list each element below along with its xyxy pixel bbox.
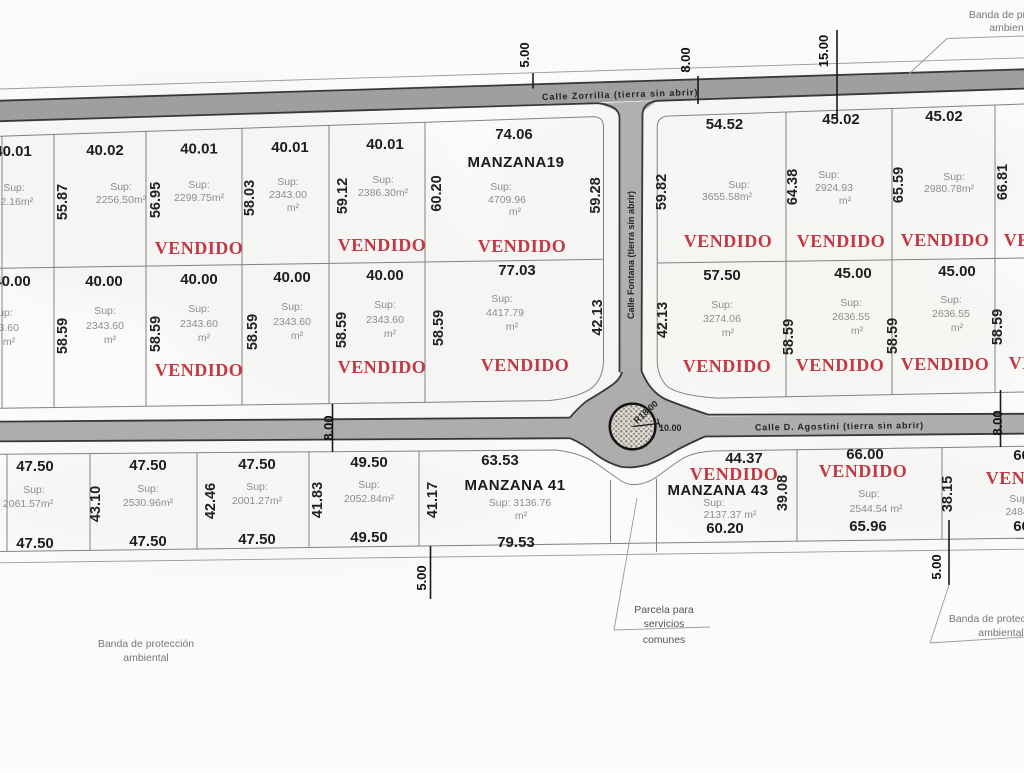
svg-text:Sup:: Sup: [490, 181, 512, 193]
svg-text:41.83: 41.83 [310, 482, 326, 518]
svg-text:VENDIDO: VENDIDO [481, 355, 570, 375]
svg-text:63.53: 63.53 [481, 452, 519, 469]
svg-text:42.13: 42.13 [655, 302, 671, 338]
svg-text:MANZANA19: MANZANA19 [467, 154, 564, 171]
svg-text:VENDIDO: VENDIDO [155, 360, 244, 380]
svg-text:47.50: 47.50 [238, 531, 276, 548]
svg-text:Sup:: Sup: [3, 182, 25, 194]
svg-text:45.02: 45.02 [822, 111, 860, 128]
svg-text:Sup:: Sup: [281, 301, 303, 313]
svg-text:VENDIDO: VENDIDO [478, 236, 567, 256]
svg-text:m²: m² [722, 327, 735, 339]
svg-text:66.00: 66.00 [1013, 518, 1024, 535]
svg-text:2924.93: 2924.93 [815, 182, 853, 194]
svg-text:55.87: 55.87 [55, 184, 71, 220]
svg-text:Sup:: Sup: [858, 488, 880, 500]
svg-text:2343.60: 2343.60 [273, 316, 311, 328]
svg-text:40.01: 40.01 [180, 141, 218, 158]
svg-text:2061.57m²: 2061.57m² [3, 498, 54, 510]
svg-text:VENDIDO: VENDIDO [338, 235, 427, 255]
svg-text:Sup:: Sup: [491, 293, 513, 305]
svg-text:66.00: 66.00 [1013, 447, 1024, 464]
svg-text:43.10: 43.10 [88, 486, 104, 522]
svg-text:15.00: 15.00 [816, 35, 831, 68]
svg-text:79.53: 79.53 [497, 534, 535, 551]
svg-text:Parcela para: Parcela para [634, 604, 694, 616]
svg-text:2484.54 m²: 2484.54 m² [1005, 506, 1024, 518]
svg-text:59.28: 59.28 [588, 177, 604, 213]
svg-text:m²: m² [509, 206, 522, 218]
svg-text:Sup:: Sup: [188, 303, 210, 315]
svg-text:45.00: 45.00 [834, 265, 872, 282]
svg-text:38.15: 38.15 [940, 476, 956, 512]
svg-text:MANZANA 41: MANZANA 41 [464, 477, 565, 494]
svg-text:59.82: 59.82 [654, 174, 670, 210]
svg-text:58.59: 58.59 [334, 312, 350, 348]
svg-text:2343.00: 2343.00 [269, 189, 307, 201]
svg-text:3655.58m²: 3655.58m² [702, 191, 753, 203]
svg-text:58.59: 58.59 [245, 314, 261, 350]
svg-text:m²: m² [291, 330, 304, 342]
svg-text:Sup:: Sup: [277, 176, 299, 188]
svg-text:77.03: 77.03 [498, 262, 536, 279]
svg-text:40.01: 40.01 [271, 139, 309, 156]
svg-text:VENDIDO: VENDIDO [683, 356, 772, 376]
svg-text:2052.84m²: 2052.84m² [344, 493, 395, 505]
svg-text:60.20: 60.20 [429, 175, 445, 211]
svg-text:m²: m² [515, 510, 528, 522]
svg-text:45.02: 45.02 [925, 108, 963, 125]
svg-text:40.02: 40.02 [86, 142, 124, 159]
svg-text:2343.60: 2343.60 [180, 318, 218, 330]
svg-text:2343.60: 2343.60 [0, 322, 19, 334]
svg-text:40.01: 40.01 [0, 143, 32, 160]
svg-text:Sup:: Sup: [728, 179, 750, 191]
svg-text:40.00: 40.00 [85, 273, 123, 290]
svg-text:VENDIDO: VENDIDO [684, 231, 773, 251]
svg-text:47.50: 47.50 [16, 458, 54, 475]
svg-text:Banda de protección: Banda de protección [949, 613, 1024, 625]
svg-text:Calle Fontana (tierra sin abri: Calle Fontana (tierra sin abrir) [626, 191, 636, 319]
svg-text:2299.75m²: 2299.75m² [174, 192, 225, 204]
svg-text:VENDIDO: VENDIDO [1009, 353, 1024, 373]
svg-text:2386.30m²: 2386.30m² [358, 187, 409, 199]
svg-text:VENDIDO: VENDIDO [1004, 230, 1024, 250]
svg-text:m²: m² [951, 322, 964, 334]
svg-text:49.50: 49.50 [350, 529, 388, 546]
svg-text:40.00: 40.00 [180, 271, 218, 288]
svg-text:Sup:: Sup: [711, 299, 733, 311]
svg-text:5.00: 5.00 [414, 565, 429, 590]
svg-text:Sup:: Sup: [943, 171, 965, 183]
svg-text:58.59: 58.59 [781, 319, 797, 355]
svg-text:Sup:: Sup: [137, 483, 159, 495]
svg-text:2636.55: 2636.55 [932, 308, 970, 320]
svg-text:49.50: 49.50 [350, 454, 388, 471]
svg-text:servicios: servicios [644, 618, 685, 630]
svg-text:3274.06: 3274.06 [703, 313, 741, 325]
svg-text:Sup:: Sup: [940, 294, 962, 306]
svg-text:47.50: 47.50 [129, 533, 167, 550]
svg-text:66.81: 66.81 [995, 164, 1011, 200]
svg-text:64.38: 64.38 [785, 169, 801, 205]
svg-text:VENDIDO: VENDIDO [155, 238, 244, 258]
svg-text:45.00: 45.00 [938, 263, 976, 280]
svg-text:Sup: 3136.76: Sup: 3136.76 [489, 497, 552, 509]
svg-text:m²: m² [851, 325, 864, 337]
svg-text:Sup:: Sup: [374, 299, 396, 311]
svg-text:Sup:: Sup: [358, 479, 380, 491]
svg-text:Sup:: Sup: [703, 497, 725, 509]
svg-text:47.50: 47.50 [16, 535, 54, 552]
svg-text:2544.54 m²: 2544.54 m² [849, 503, 903, 515]
svg-text:Sup:: Sup: [246, 481, 268, 493]
svg-text:65.96: 65.96 [849, 518, 887, 535]
svg-text:Sup:: Sup: [840, 297, 862, 309]
svg-text:54.52: 54.52 [706, 116, 744, 133]
svg-text:47.50: 47.50 [238, 456, 276, 473]
svg-text:ambiental: ambiental [989, 22, 1024, 34]
svg-text:Banda de protección: Banda de protección [98, 638, 194, 650]
svg-text:ambiental: ambiental [123, 652, 169, 664]
svg-text:42.13: 42.13 [590, 299, 606, 335]
svg-text:2256.50m²: 2256.50m² [96, 194, 147, 206]
svg-text:57.50: 57.50 [703, 267, 741, 284]
svg-text:58.59: 58.59 [148, 316, 164, 352]
svg-text:4709.96: 4709.96 [488, 194, 526, 206]
svg-text:ambiental: ambiental [978, 627, 1024, 639]
svg-text:m²: m² [839, 195, 852, 207]
svg-text:Sup:: Sup: [818, 169, 840, 181]
svg-text:2636.55: 2636.55 [832, 311, 870, 323]
svg-text:40.00: 40.00 [273, 269, 311, 286]
svg-text:39.08: 39.08 [775, 475, 791, 511]
svg-text:m²: m² [198, 332, 211, 344]
svg-text:8.00: 8.00 [321, 415, 336, 440]
svg-text:2212.16m²: 2212.16m² [0, 196, 34, 208]
svg-text:56.95: 56.95 [148, 182, 164, 218]
svg-text:74.06: 74.06 [495, 126, 533, 143]
svg-text:42.46: 42.46 [203, 483, 219, 519]
svg-text:VENDIDO: VENDIDO [338, 357, 427, 377]
svg-text:2343.60: 2343.60 [86, 320, 124, 332]
svg-text:Sup:: Sup: [1009, 493, 1024, 505]
svg-text:Sup:: Sup: [110, 181, 132, 193]
svg-text:m²: m² [104, 334, 117, 346]
svg-text:65.59: 65.59 [891, 167, 907, 203]
svg-text:58.59: 58.59 [885, 318, 901, 354]
svg-text:2343.60: 2343.60 [366, 314, 404, 326]
svg-text:VENDIDO: VENDIDO [901, 354, 990, 374]
svg-text:58.59: 58.59 [55, 318, 71, 354]
svg-text:40.01: 40.01 [366, 136, 404, 153]
svg-text:Sup:: Sup: [23, 484, 45, 496]
svg-text:VENDIDO: VENDIDO [796, 355, 885, 375]
svg-text:59.12: 59.12 [335, 178, 351, 214]
svg-text:m²: m² [3, 336, 16, 348]
svg-text:2980.78m²: 2980.78m² [924, 183, 975, 195]
svg-text:comunes: comunes [643, 634, 686, 646]
svg-text:58.59: 58.59 [431, 310, 447, 346]
svg-text:40.00: 40.00 [366, 267, 404, 284]
svg-text:m²: m² [287, 202, 300, 214]
svg-text:8.00: 8.00 [990, 410, 1005, 435]
svg-text:VENDIDO: VENDIDO [797, 231, 886, 251]
svg-text:4417.79: 4417.79 [486, 307, 524, 319]
svg-text:Sup:: Sup: [372, 174, 394, 186]
svg-text:m²: m² [506, 321, 519, 333]
svg-text:60.20: 60.20 [706, 520, 744, 537]
svg-text:VENDIDO: VENDIDO [901, 230, 990, 250]
svg-text:40.00: 40.00 [0, 273, 31, 290]
svg-text:47.50: 47.50 [129, 457, 167, 474]
svg-text:VENDIDO: VENDIDO [690, 464, 779, 484]
svg-text:VENDIDO: VENDIDO [819, 461, 908, 481]
svg-text:10.00: 10.00 [659, 423, 682, 433]
svg-text:5.00: 5.00 [517, 42, 532, 67]
svg-text:Sup:: Sup: [188, 179, 210, 191]
svg-text:m²: m² [384, 328, 397, 340]
svg-text:Sup:: Sup: [0, 307, 13, 319]
svg-text:5.00: 5.00 [929, 554, 944, 579]
svg-text:2001.27m²: 2001.27m² [232, 495, 283, 507]
svg-text:41.17: 41.17 [425, 482, 441, 518]
svg-text:58.03: 58.03 [242, 180, 258, 216]
svg-text:VENDIDO: VENDIDO [986, 468, 1024, 488]
svg-text:58.59: 58.59 [990, 309, 1006, 345]
svg-text:Sup:: Sup: [94, 305, 116, 317]
svg-text:Banda de protección: Banda de protección [969, 9, 1024, 21]
svg-text:2530.96m²: 2530.96m² [123, 497, 174, 509]
svg-text:8.00: 8.00 [678, 47, 693, 72]
